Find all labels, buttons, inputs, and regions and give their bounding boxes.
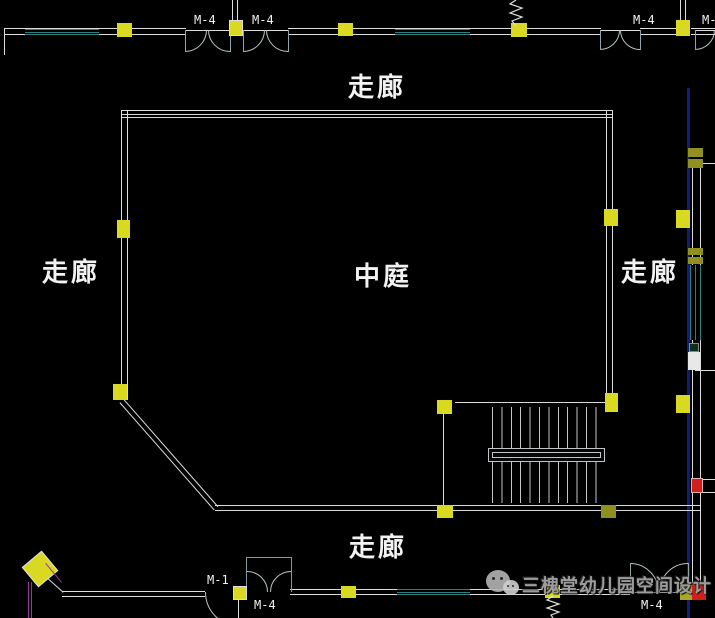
- door-tag-m4-top-1: M-4: [194, 13, 216, 27]
- door-tag-m4-bottom-right: M-4: [641, 598, 663, 612]
- door-leaf: [185, 30, 186, 52]
- door-leaf: [695, 30, 696, 50]
- column-marker: [437, 400, 452, 414]
- column-marker: [233, 586, 247, 600]
- magenta-pipe-line: [31, 582, 32, 618]
- column-marker: [229, 20, 243, 36]
- right-wall-tick: [695, 370, 715, 371]
- door-leaf: [243, 30, 244, 52]
- magenta-pipe-line: [28, 582, 29, 618]
- stair-top-line: [455, 402, 610, 403]
- column-marker: [117, 220, 130, 238]
- right-wall-line: [700, 163, 701, 583]
- stair-treads-lower: [492, 461, 605, 503]
- stair-landing: [488, 448, 605, 462]
- outer-wall-top-2: [132, 28, 186, 35]
- right-wall-line: [692, 163, 693, 583]
- wechat-icon: [486, 570, 522, 600]
- door-tag-m4-bottom-center: M-4: [254, 598, 276, 612]
- corridor-label-left: 走廊: [42, 252, 100, 289]
- door-leaf: [288, 30, 289, 52]
- wall-block: [689, 343, 699, 352]
- door-frame: [291, 557, 292, 592]
- wall-stub: [685, 0, 686, 21]
- door-tag-m4-top-right: M-4: [633, 13, 655, 27]
- window-symbol: [690, 265, 701, 340]
- column-marker: [676, 395, 690, 413]
- atrium-wall-bottom: [215, 505, 700, 511]
- column-marker: [676, 20, 690, 36]
- door-tag-m4-far-right: M-4: [702, 13, 715, 27]
- corridor-label-right: 走廊: [621, 252, 679, 289]
- column-marker: [601, 505, 616, 518]
- outer-wall-bottom-1: [62, 591, 205, 597]
- watermark: 三槐堂幼儿园空间设计: [486, 570, 712, 600]
- atrium-label: 中庭: [354, 256, 412, 293]
- column-marker: [604, 209, 618, 226]
- wall-stub: [680, 0, 681, 21]
- door-leaf: [640, 30, 641, 50]
- door-tag-m1-bottom: M-1: [207, 573, 229, 587]
- atrium-wall-chamfer: [119, 399, 218, 510]
- atrium-wall-top: [121, 110, 612, 118]
- outer-wall-top-4: [527, 28, 601, 35]
- column-marker: [688, 148, 703, 157]
- column-marker: [688, 248, 703, 255]
- door-tag-m4-top-2: M-4: [252, 13, 274, 27]
- break-line-icon: [506, 0, 526, 26]
- stair-left-line: [443, 402, 444, 512]
- door-leaf: [600, 30, 601, 50]
- outer-wall-top-5: [640, 28, 677, 35]
- corridor-label-top: 走廊: [348, 67, 406, 104]
- column-marker: [688, 159, 703, 168]
- stair-handrail: [492, 452, 601, 458]
- atrium-wall-right: [606, 110, 613, 393]
- corridor-label-bottom: 走廊: [349, 527, 407, 564]
- window-symbol: [395, 29, 470, 35]
- window-symbol: [25, 29, 99, 35]
- column-marker: [117, 23, 132, 37]
- column-marker: [113, 384, 127, 400]
- column-marker: [688, 257, 703, 264]
- column-marker: [338, 23, 353, 36]
- column-marker: [341, 586, 356, 598]
- red-marker: [691, 478, 703, 493]
- floorplan-canvas: 走廊 走廊 走廊 走廊 中庭 M-4 M-4 M-4 M-4 M-1 M-4 M…: [0, 0, 715, 618]
- wechat-bubble-small: [503, 580, 519, 595]
- watermark-text: 三槐堂幼儿园空间设计: [522, 572, 712, 598]
- column-marker: [437, 505, 453, 518]
- wall-stub: [232, 0, 233, 21]
- wall-stub: [237, 0, 238, 21]
- column-marker: [676, 210, 690, 228]
- column-marker: [605, 393, 618, 412]
- atrium-wall-left: [121, 110, 128, 400]
- stair-treads-upper: [492, 407, 605, 450]
- wall-block-white: [688, 352, 700, 370]
- door-frame: [246, 557, 292, 558]
- window-symbol: [397, 589, 470, 595]
